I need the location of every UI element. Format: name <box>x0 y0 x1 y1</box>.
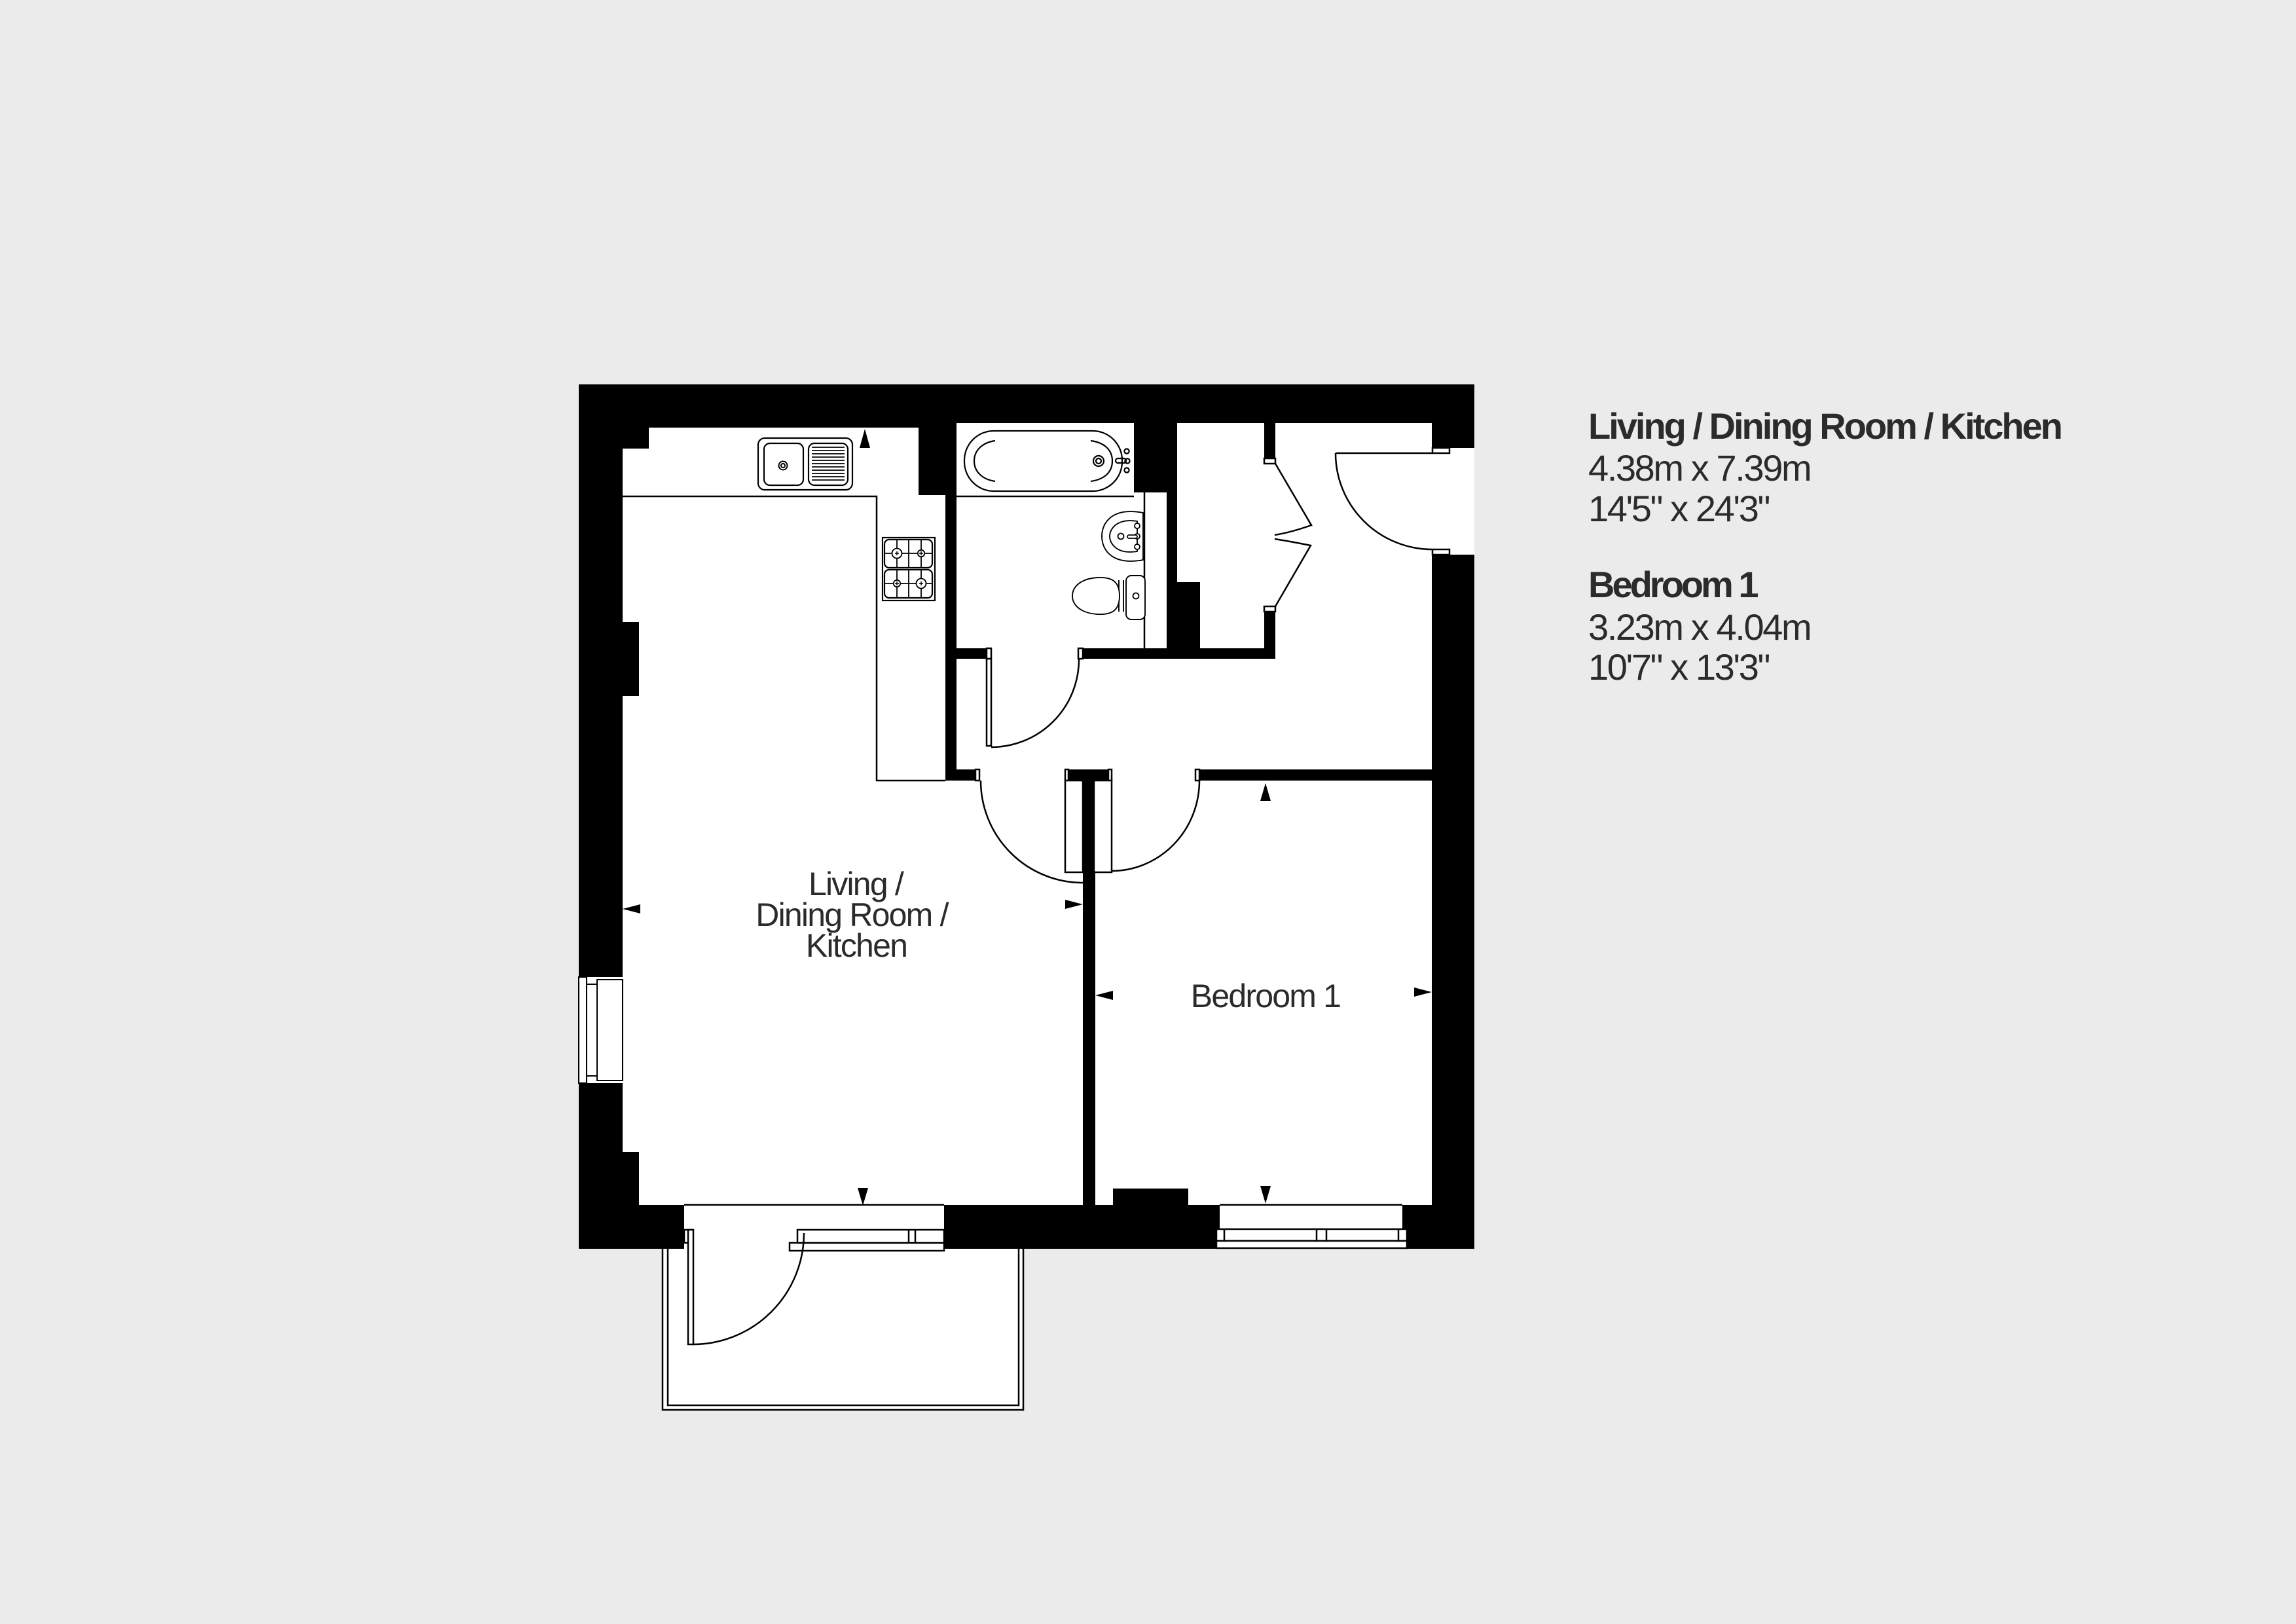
svg-text:14'5" x 24'3": 14'5" x 24'3" <box>1588 488 1769 529</box>
svg-text:4.38m x 7.39m: 4.38m x 7.39m <box>1588 447 1810 489</box>
svg-text:10'7" x 13'3": 10'7" x 13'3" <box>1588 646 1769 688</box>
svg-text:Living / Dining Room / Kitchen: Living / Dining Room / Kitchen <box>1588 405 2061 447</box>
svg-text:Bedroom 1: Bedroom 1 <box>1191 978 1340 1014</box>
svg-text:3.23m x 4.04m: 3.23m x 4.04m <box>1588 606 1810 648</box>
svg-text:Bedroom 1: Bedroom 1 <box>1588 564 1758 605</box>
svg-text:Kitchen: Kitchen <box>806 927 907 964</box>
